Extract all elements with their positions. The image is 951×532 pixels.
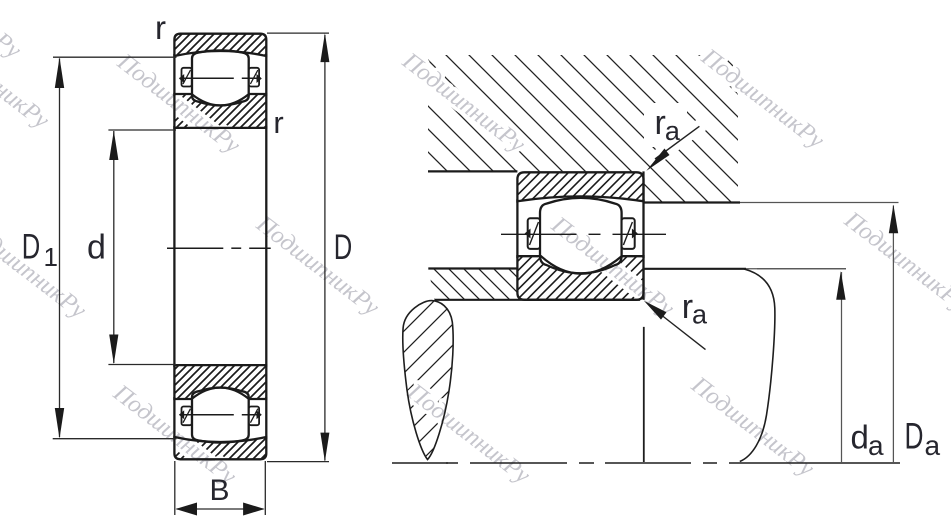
svg-text:a: a [692,300,708,330]
svg-text:D: D [22,228,41,267]
svg-text:r: r [155,9,166,46]
svg-text:a: a [665,116,681,146]
svg-text:1: 1 [44,242,58,272]
svg-text:D: D [334,228,353,267]
svg-text:B: B [210,474,230,507]
svg-text:r: r [273,105,283,140]
svg-text:d: d [851,419,869,456]
svg-text:a: a [925,430,941,461]
svg-text:d: d [87,229,106,267]
svg-text:D: D [905,416,924,457]
svg-text:a: a [868,430,884,461]
